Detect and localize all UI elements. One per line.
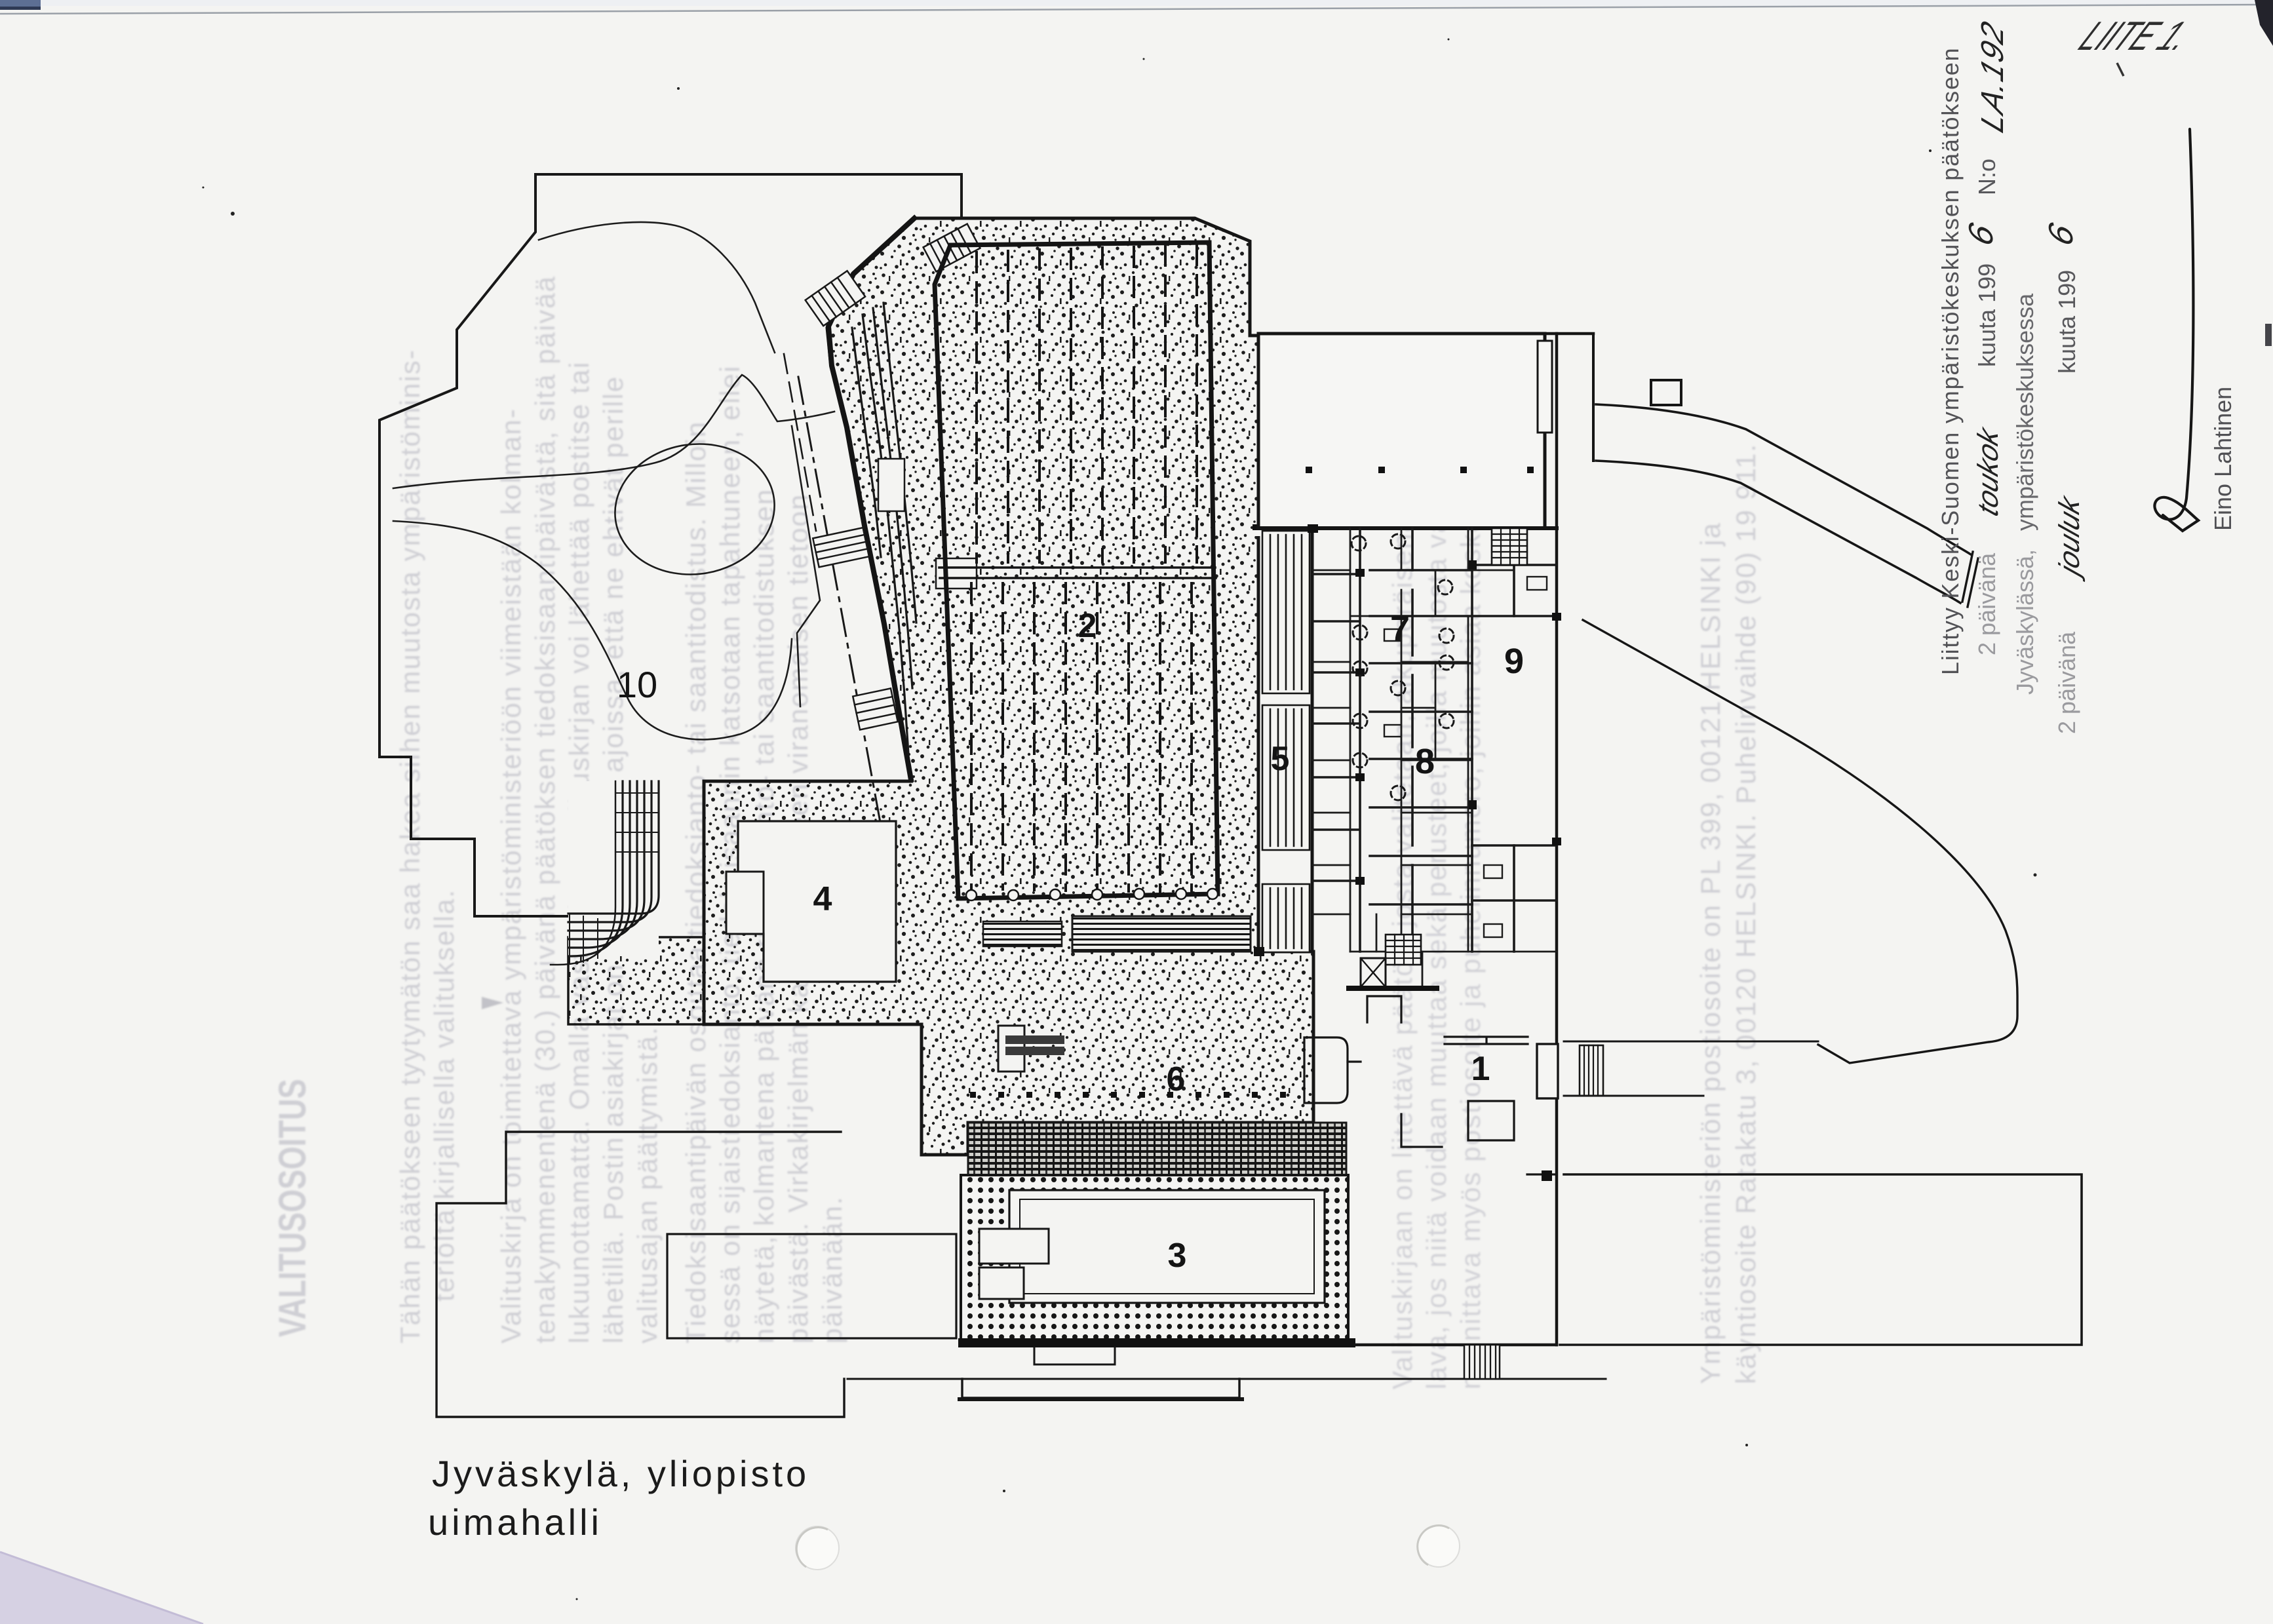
svg-text:3: 3 — [1168, 1237, 1187, 1275]
svg-text:5: 5 — [1271, 740, 1290, 778]
svg-text:Liittyy Keski-Suomen ympäristö: Liittyy Keski-Suomen ympäristökeskuksen … — [1937, 47, 1964, 675]
svg-text:lava, jos niitä voidaan muutta: lava, jos niitä voidaan muuttaa sekä per… — [1421, 417, 1452, 1389]
svg-text:Tähän päätökseen tyytymätön sa: Tähän päätökseen tyytymätön saa hakea si… — [395, 349, 425, 1344]
svg-text:2 päivänä: 2 päivänä — [1973, 552, 2000, 655]
svg-text:kuuta 199: kuuta 199 — [1973, 263, 2000, 367]
svg-text:Jyväskylässä,: Jyväskylässä, — [2011, 549, 2038, 695]
svg-text:tenakymmenentenä (30.) päivänä: tenakymmenentenä (30.) päivänä päätöksen… — [530, 275, 560, 1344]
svg-text:Ympäristöministeriön postiosoi: Ympäristöministeriön postiosoite on PL 3… — [1695, 522, 1726, 1384]
svg-text:6: 6 — [1167, 1060, 1186, 1098]
svg-text:kuuta 199: kuuta 199 — [2053, 270, 2080, 374]
svg-text:valitusajan päättymistä.: valitusajan päättymistä. — [632, 1026, 663, 1344]
svg-text:2 päivänä: 2 päivänä — [2053, 631, 2080, 734]
svg-text:N:o: N:o — [1973, 159, 2000, 195]
svg-text:7: 7 — [1390, 609, 1410, 648]
svg-text:1: 1 — [1471, 1050, 1490, 1088]
svg-text:Eino Lahtinen: Eino Lahtinen — [2209, 387, 2236, 531]
svg-text:uimahalli: uimahalli — [428, 1501, 602, 1543]
svg-text:päivänään.: päivänään. — [817, 1195, 847, 1344]
svg-text:4: 4 — [813, 880, 832, 918]
svg-text:ympäristökeskuksessa: ympäristökeskuksessa — [2011, 293, 2038, 531]
svg-text:10: 10 — [617, 664, 657, 705]
svg-text:jouluk: jouluk — [2053, 490, 2085, 583]
svg-text:teriöltä kirjallisella valituk: teriöltä kirjallisella valituksella. — [429, 889, 459, 1302]
svg-text:Jyväskylä, yliopisto: Jyväskylä, yliopisto — [432, 1453, 809, 1494]
svg-text:käyntiosoite Ratakatu 3, 00120: käyntiosoite Ratakatu 3, 00120 HELSINKI.… — [1730, 443, 1761, 1384]
svg-text:LA.192: LA.192 — [1975, 15, 2010, 137]
svg-text:8: 8 — [1415, 742, 1435, 781]
svg-text:toukok: toukok — [1972, 422, 2004, 520]
svg-text:mainittava myös postiosoite ja: mainittava myös postiosoite ja puhelinnu… — [1455, 475, 1486, 1389]
svg-text:9: 9 — [1504, 642, 1524, 681]
svg-text:VALITUSOSOITUS: VALITUSOSOITUS — [272, 1079, 315, 1337]
svg-text:2: 2 — [1078, 607, 1097, 645]
